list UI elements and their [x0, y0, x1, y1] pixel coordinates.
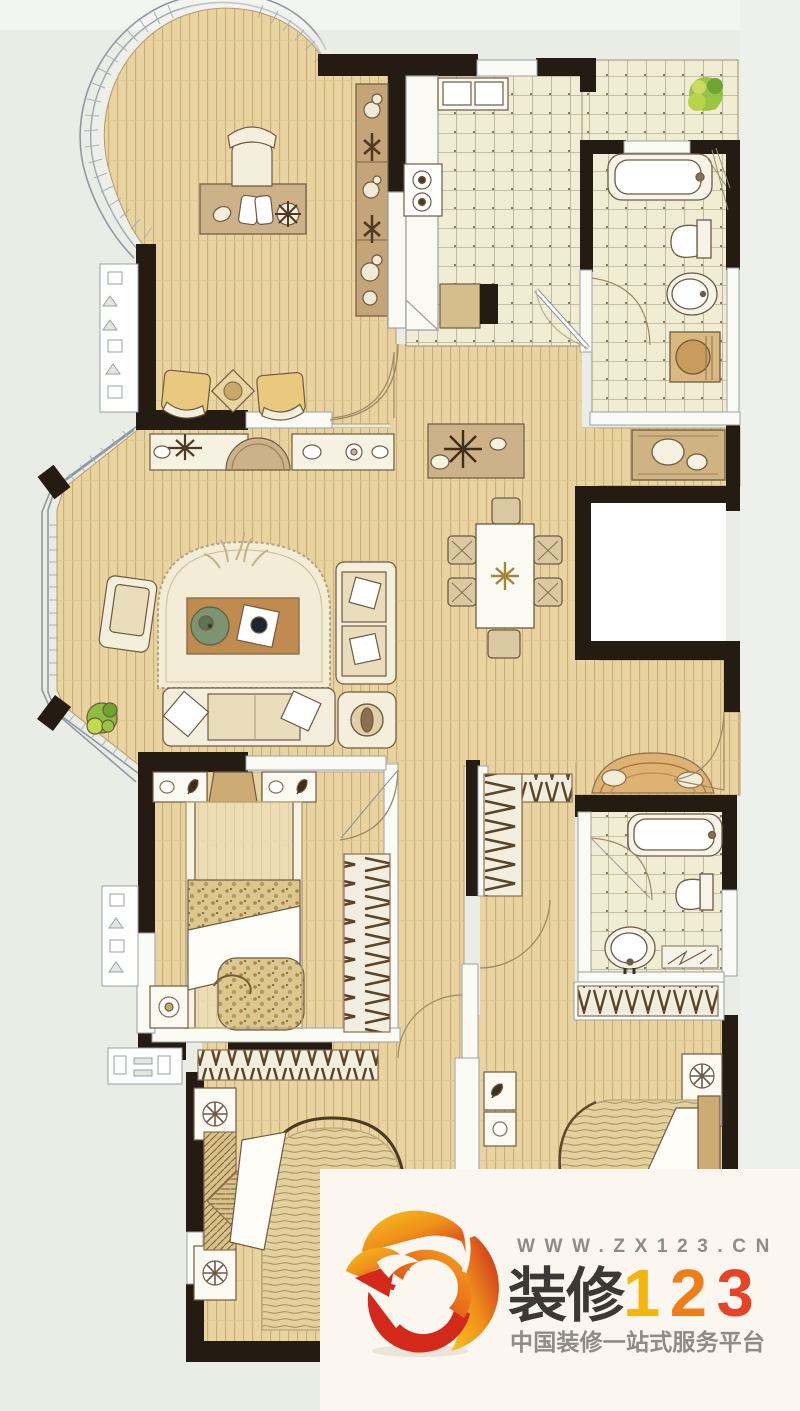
svg-text:123: 123 — [623, 1256, 763, 1331]
svg-text:WWW.ZX123.CN: WWW.ZX123.CN — [517, 1236, 779, 1257]
svg-text:中国装修一站式服务平台: 中国装修一站式服务平台 — [510, 1329, 765, 1355]
svg-text:装修: 装修 — [508, 1263, 626, 1329]
